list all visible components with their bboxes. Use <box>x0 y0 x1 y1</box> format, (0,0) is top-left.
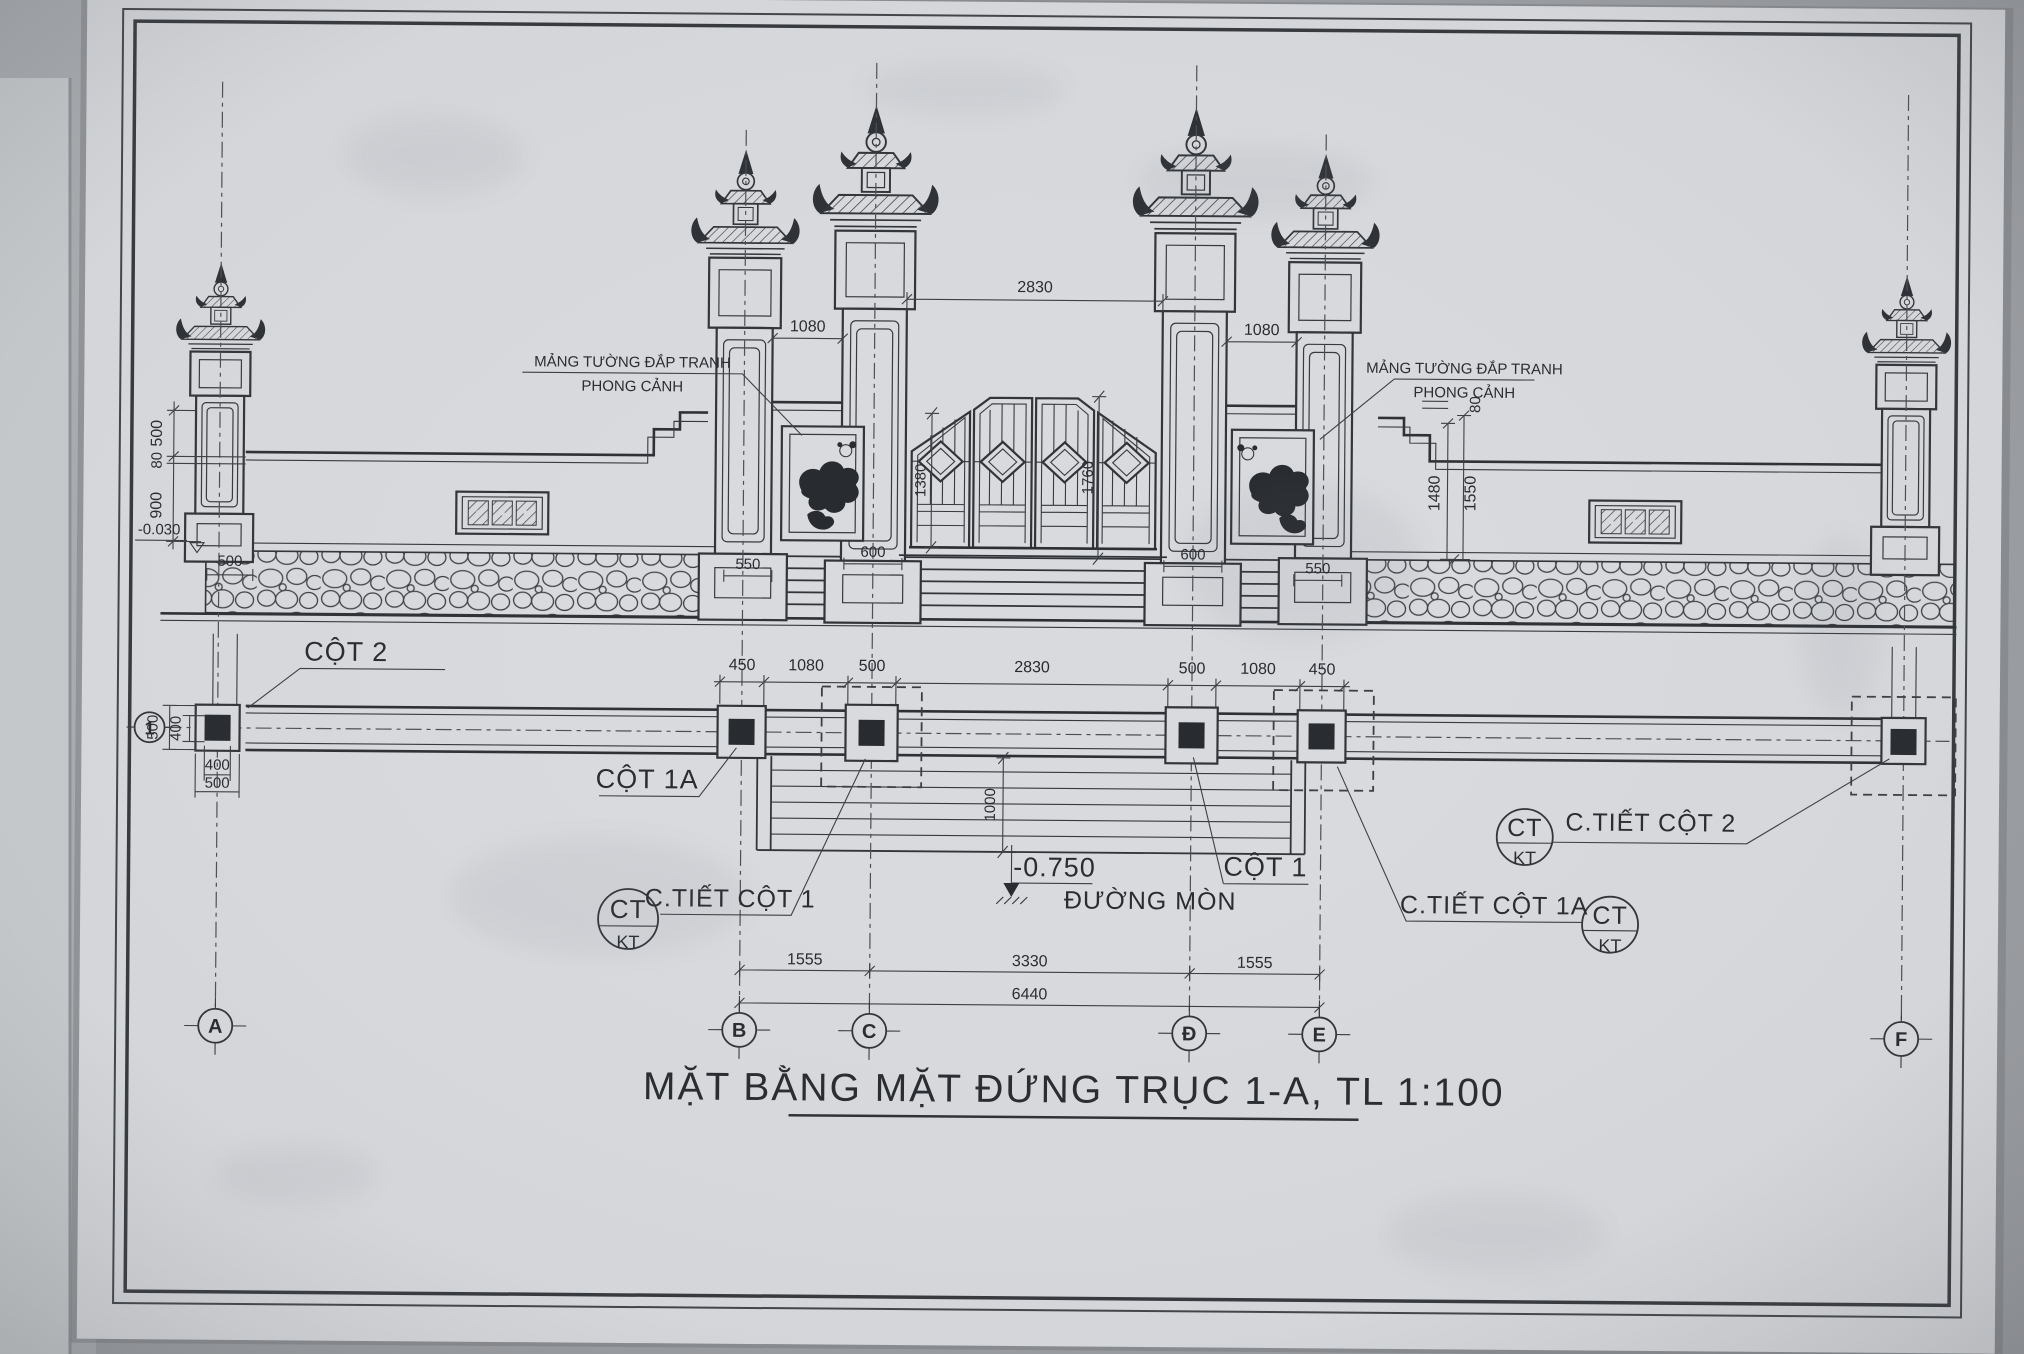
photo-vignette <box>0 0 2024 1354</box>
blueprint-photo: 1080 2830 1080 500 80 900 -0.030 500 80 … <box>0 0 2024 1354</box>
